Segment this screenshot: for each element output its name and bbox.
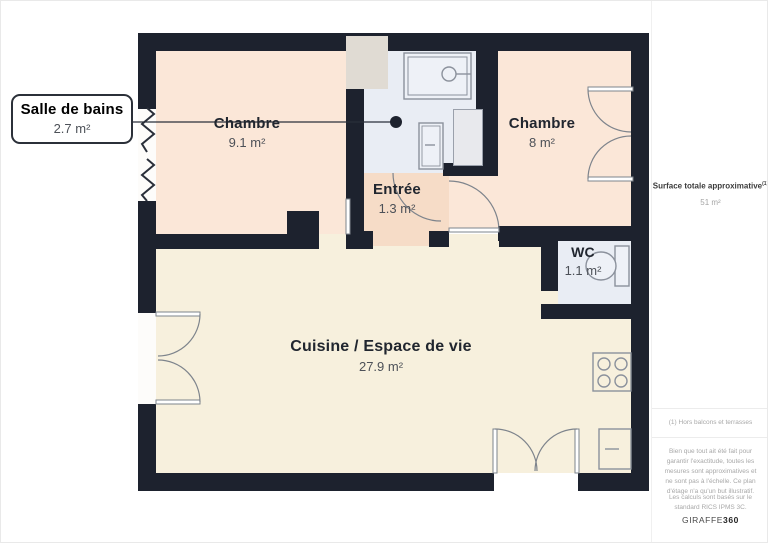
callout-area: 2.7 m² xyxy=(13,121,131,136)
footnote-box: (1) Hors balcons et terrasses xyxy=(652,408,768,438)
callout-title: Salle de bains xyxy=(13,101,131,118)
room-area: 1.1 m² xyxy=(565,263,602,278)
wardrobe xyxy=(453,109,483,166)
room-area: 27.9 m² xyxy=(290,359,472,374)
room-name: Cuisine / Espace de vie xyxy=(290,338,472,356)
room-name: Entrée xyxy=(373,181,421,198)
floorplan-page: Salle de bains 2.7 m² Chambre 9.1 m² Cha… xyxy=(0,0,768,543)
callout-salle-de-bains: Salle de bains 2.7 m² xyxy=(11,94,133,144)
info-sidebar: Surface totale approximative(1) 51 m² (1… xyxy=(651,1,768,543)
room-name: WC xyxy=(565,244,602,260)
room-label-chambre-1: Chambre 9.1 m² xyxy=(214,115,280,150)
wall-right xyxy=(631,33,649,491)
floor-hall-door-swing xyxy=(449,176,498,231)
standard-text: Les calculs sont basés sur le standard R… xyxy=(652,493,768,513)
room-area: 1.3 m² xyxy=(373,201,421,216)
wall-entree-mid xyxy=(429,231,449,247)
wall-chambre2-wc xyxy=(498,226,649,241)
disclaimer-text: Bien que tout ait été fait pour garantir… xyxy=(652,447,768,497)
room-label-entree: Entrée 1.3 m² xyxy=(373,181,421,216)
wall-left-a xyxy=(138,33,156,109)
footnote-text: (1) Hors balcons et terrasses xyxy=(658,418,763,428)
room-label-chambre-2: Chambre 8 m² xyxy=(509,115,575,150)
wall-bottom-right xyxy=(578,473,649,491)
room-area: 8 m² xyxy=(509,135,575,150)
logo-regular: GIRAFFE xyxy=(682,515,723,525)
giraffe360-logo: GIRAFFE360 xyxy=(652,515,768,525)
surface-total-label: Surface totale approximative(1) xyxy=(652,181,768,191)
room-name: Chambre xyxy=(509,115,575,132)
room-name: Chambre xyxy=(214,115,280,132)
room-label-cuisine: Cuisine / Espace de vie 27.9 m² xyxy=(290,338,472,374)
logo-bold: 360 xyxy=(723,515,739,525)
surface-total-block: Surface totale approximative(1) 51 m² xyxy=(652,181,768,207)
wall-chambre1-cuisine xyxy=(138,234,319,249)
room-label-wc: WC 1.1 m² xyxy=(565,244,602,278)
wall-left-b xyxy=(138,201,156,313)
floor-entree-passage xyxy=(373,234,429,246)
wall-entree-left xyxy=(346,231,373,249)
wall-left-c xyxy=(138,404,156,491)
surface-label-sup: (1) xyxy=(762,181,768,187)
wall-bump xyxy=(287,211,319,234)
wall-top xyxy=(138,33,649,51)
surface-total-value: 51 m² xyxy=(652,198,768,207)
window-strip xyxy=(138,109,156,201)
wall-chambre1-bath xyxy=(346,86,364,249)
door-strip xyxy=(138,313,156,404)
wall-wc-left xyxy=(541,241,558,291)
room-area: 9.1 m² xyxy=(214,135,280,150)
shaft-closet xyxy=(346,36,388,89)
wall-wc-bottom xyxy=(541,304,649,319)
wall-bottom-left xyxy=(138,473,494,491)
surface-label-text: Surface totale approximative xyxy=(653,182,762,191)
